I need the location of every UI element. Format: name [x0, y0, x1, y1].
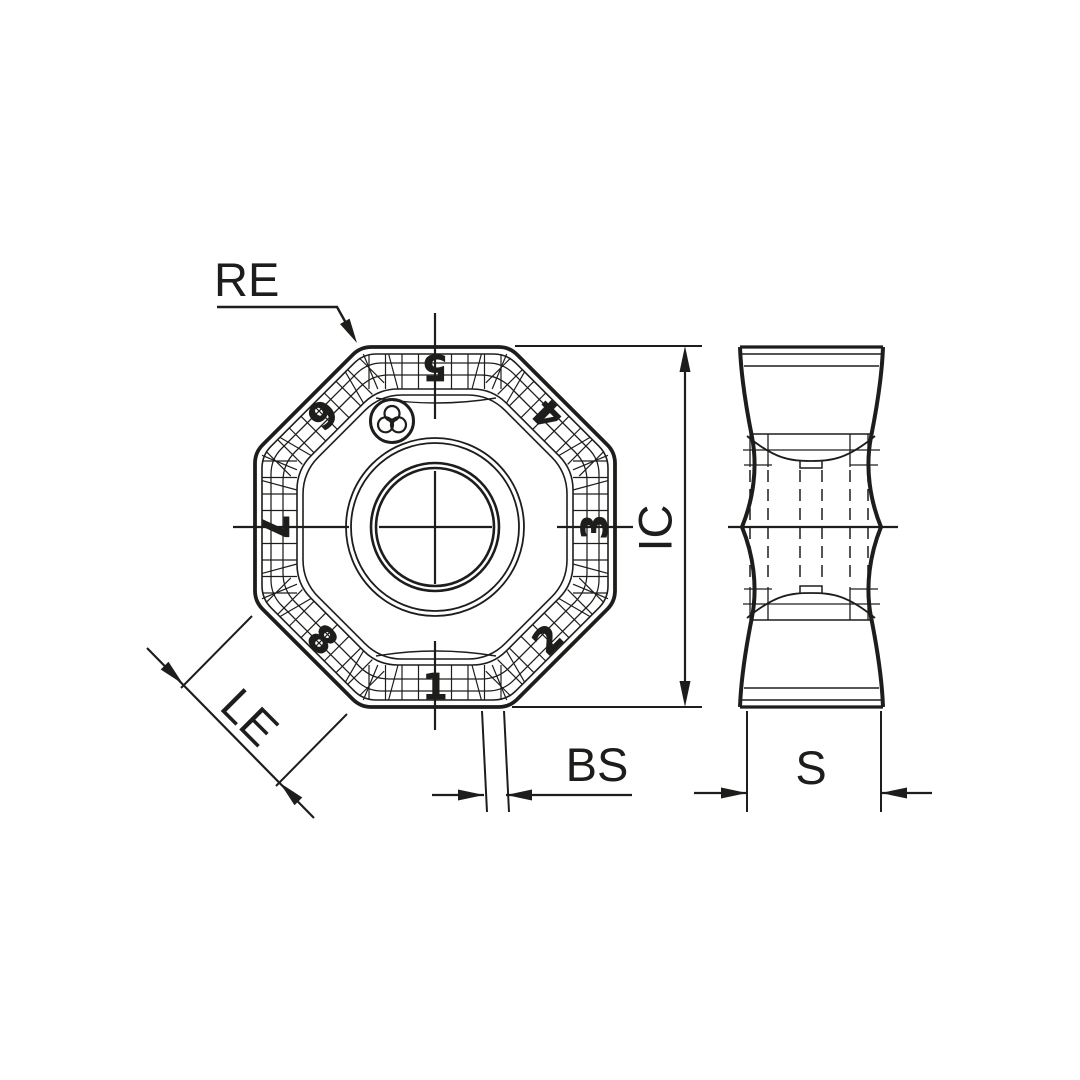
insert-technical-drawing: 1 2 3 4 5 6 7 8	[0, 0, 1080, 1080]
trefoil-logo-icon	[371, 400, 414, 443]
side-lower-band	[743, 586, 880, 620]
side-view	[728, 347, 898, 707]
re-label: RE	[214, 253, 279, 306]
edge-number-7: 7	[254, 514, 295, 539]
s-label: S	[795, 741, 826, 794]
le-label: LE	[211, 678, 289, 756]
re-arrowhead	[340, 319, 357, 343]
side-upper-band	[743, 434, 880, 468]
ic-label: IC	[628, 505, 681, 552]
edge-number-1: 1	[422, 667, 447, 708]
drawing-svg: 1 2 3 4 5 6 7 8	[0, 0, 1080, 1080]
re-leader	[217, 307, 357, 343]
edge-number-3: 3	[575, 514, 616, 539]
edge-number-5: 5	[422, 346, 447, 387]
bs-label: BS	[566, 738, 629, 791]
